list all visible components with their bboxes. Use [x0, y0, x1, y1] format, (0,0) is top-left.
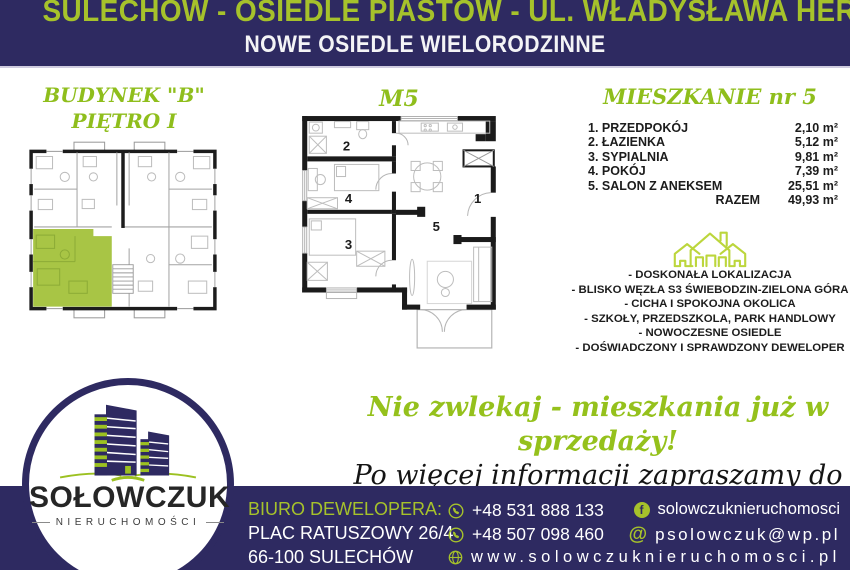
highlighted-apartment [33, 229, 112, 307]
room-number-2: 2 [343, 138, 350, 153]
room-number-5: 5 [433, 219, 440, 234]
website-link[interactable]: www.solowczuknieruchomosci.pl [471, 548, 841, 567]
building-title: BUDYNEK "B" PIĘTRO I [26, 82, 222, 134]
logo-name: SOŁOWCZUK [29, 481, 227, 515]
room-area: 9,81 m² [776, 150, 838, 164]
feature-list: - DOSKONAŁA LOKALIZACJA - BLISKO WĘZŁA S… [570, 268, 850, 356]
feature-item: - DOŚWIADCZONY I SPRAWDZONY DEWELOPER [570, 341, 850, 356]
divider [32, 522, 50, 523]
phone-number-2[interactable]: +48 507 098 460 [472, 524, 604, 545]
table-row: 2. ŁAZIENKA 5,12 m² [588, 135, 838, 149]
header-title: SULECHÓW - OSIEDLE PIASTÓW - UL. WŁADYSŁ… [43, 0, 808, 29]
room-area: 5,12 m² [776, 135, 838, 149]
feature-item: - CICHA I SPOKOJNA OKOLICA [570, 297, 850, 312]
header-banner: SULECHÓW - OSIEDLE PIASTÓW - UL. WŁADYSŁ… [0, 0, 850, 68]
feature-item: - NOWOCZESNE OSIEDLE [570, 326, 850, 341]
office-label: BIURO DEWELOPERA: [248, 497, 453, 521]
address-line-2: 66-100 SULECHÓW [248, 545, 453, 569]
real-estate-flyer: SULECHÓW - OSIEDLE PIASTÓW - UL. WŁADYSŁ… [0, 0, 850, 570]
room-label: 5. SALON Z ANEKSEM [588, 179, 776, 193]
feature-item: - BLISKO WĘZŁA S3 ŚWIEBODZIN-ZIELONA GÓR… [570, 283, 850, 298]
table-row: 4. POKÓJ 7,39 m² [588, 164, 838, 178]
table-row: 3. SYPIALNIA 9,81 m² [588, 150, 838, 164]
email-row[interactable]: @ psolowczuk@wp.pl [629, 524, 840, 546]
table-row: 1. PRZEDPOKÓJ 2,10 m² [588, 121, 838, 135]
room-number-3: 3 [345, 237, 352, 252]
total-row: RAZEM 49,93 m² [588, 193, 838, 207]
room-number-4: 4 [345, 191, 353, 206]
feature-item: - DOSKONAŁA LOKALIZACJA [570, 268, 850, 283]
room-label: 3. SYPIALNIA [588, 150, 776, 164]
company-logo: SOŁOWCZUK NIERUCHOMOŚCI [22, 378, 234, 570]
total-label: RAZEM [588, 193, 776, 207]
total-area: 49,93 m² [776, 193, 838, 207]
apartment-list-title: MIESZKANIE nr 5 [575, 84, 845, 109]
phone-row-2[interactable]: +48 507 098 460 [448, 524, 604, 545]
phone-number-1[interactable]: +48 531 888 133 [472, 500, 604, 521]
buildings-icon [55, 399, 201, 487]
building-title-line1: BUDYNEK "B" [26, 82, 222, 108]
facebook-row[interactable]: f solowczuknieruchomosci [634, 500, 841, 519]
promo-line-1: Nie zwlekaj - mieszkania już w sprzedaży… [348, 391, 848, 459]
house-icon [666, 222, 754, 268]
room-label: 4. POKÓJ [588, 164, 776, 178]
room-area: 25,51 m² [776, 179, 838, 193]
header-subtitle: NOWE OSIEDLE WIELORODZINNE [51, 31, 799, 59]
room-area-table: 1. PRZEDPOKÓJ 2,10 m² 2. ŁAZIENKA 5,12 m… [588, 121, 838, 207]
at-icon: @ [629, 524, 648, 546]
logo-subtitle: NIERUCHOMOŚCI [56, 517, 201, 528]
website-row[interactable]: www.solowczuknieruchomosci.pl [448, 548, 841, 567]
building-title-line2: PIĘTRO I [26, 108, 222, 134]
office-address-block: BIURO DEWELOPERA: PLAC RATUSZOWY 26/4 66… [248, 497, 453, 569]
room-label: 2. ŁAZIENKA [588, 135, 776, 149]
phone-icon [448, 503, 464, 519]
building-floor-plan [26, 136, 220, 324]
room-number-1: 1 [474, 191, 481, 206]
apartment-plan-title: M5 [298, 86, 500, 112]
facebook-handle[interactable]: solowczuknieruchomosci [658, 500, 841, 519]
room-area: 2,10 m² [776, 121, 838, 135]
globe-icon [448, 550, 463, 565]
apartment-floor-plan: 2 4 3 5 1 [298, 112, 500, 354]
logo-subtitle-row: NIERUCHOMOŚCI [29, 517, 227, 528]
phone-row-1[interactable]: +48 531 888 133 [448, 500, 604, 521]
phone-icon [448, 527, 464, 543]
email-address[interactable]: psolowczuk@wp.pl [655, 525, 840, 545]
facebook-icon: f [634, 502, 650, 518]
address-line-1: PLAC RATUSZOWY 26/4 [248, 521, 453, 545]
divider [206, 522, 224, 523]
feature-item: - SZKOŁY, PRZEDSZKOLA, PARK HANDLOWY [570, 312, 850, 327]
room-label: 1. PRZEDPOKÓJ [588, 121, 776, 135]
table-row: 5. SALON Z ANEKSEM 25,51 m² [588, 179, 838, 193]
room-area: 7,39 m² [776, 164, 838, 178]
